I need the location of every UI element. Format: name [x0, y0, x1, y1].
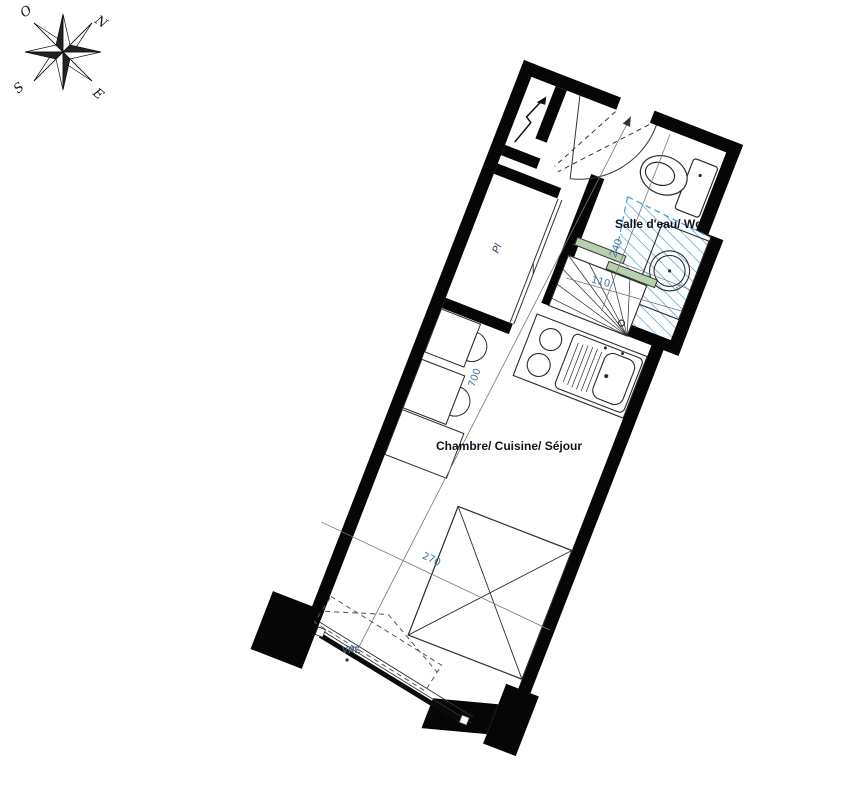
entrance-door	[551, 96, 657, 201]
room-label-main: Chambre/ Cuisine/ Séjour	[436, 439, 582, 453]
wall-closet-top	[494, 164, 561, 199]
window-shutter-label: VRE	[342, 645, 361, 655]
compass-east-label: E	[89, 85, 107, 104]
compass-south-label: S	[11, 80, 28, 97]
closet-label: Pl	[491, 242, 505, 255]
wall-pier-bottom-left	[251, 591, 325, 669]
compass-north-label: N	[91, 12, 110, 32]
wall-elec-closet	[535, 86, 566, 143]
door-swing-arc	[570, 103, 656, 201]
wall-elec-closet-bottom	[501, 145, 540, 169]
window-label-dot	[345, 658, 348, 661]
apartment-plan: 40	[246, 45, 758, 766]
bed-icon	[408, 506, 572, 679]
compass-west-label: O	[18, 3, 36, 22]
dim-270-label: 270	[420, 551, 442, 569]
walls	[246, 45, 758, 766]
door-dash-1	[555, 98, 616, 179]
floor-plan-canvas: O N S E	[0, 0, 864, 800]
floor-plan-page: O N S E	[0, 0, 864, 800]
dim-700-label: 700	[467, 367, 484, 389]
compass-star	[25, 14, 101, 90]
room-label-bathroom: Salle d'eau/ Wc	[615, 217, 702, 231]
wall-left	[310, 60, 536, 617]
door-dash-2	[558, 100, 649, 196]
compass-rose: O N S E	[11, 3, 110, 104]
